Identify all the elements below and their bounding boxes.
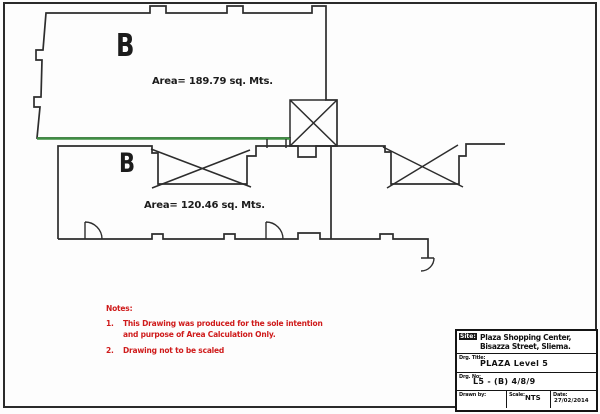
drg-no-value: L5 - (B) 4/8/9 xyxy=(473,377,536,386)
drawn-by-cell: Drawn by: xyxy=(457,391,507,408)
note-text: Drawing not to be scaled xyxy=(123,345,224,357)
lower-unit-area-text: Area= 120.46 sq. Mts. xyxy=(144,200,265,211)
note-item: 2. Drawing not to be scaled xyxy=(106,345,323,357)
drawn-by-label: Drawn by: xyxy=(459,392,486,398)
upper-unit-area-text: Area= 189.79 sq. Mts. xyxy=(152,76,273,87)
lower-unit-bottom-outline xyxy=(58,233,428,258)
note-number: 1. xyxy=(106,318,123,341)
door-swing-bottom-right xyxy=(421,258,434,271)
date-value: 27/02/2014 xyxy=(554,398,589,404)
title-block: Site: Plaza Shopping Center, Bisazza Str… xyxy=(455,329,598,412)
upper-stair-cross xyxy=(290,100,337,146)
scale-cell: Scale: NTS xyxy=(507,391,551,408)
door-swing-middle xyxy=(266,222,283,239)
date-cell: Date: 27/02/2014 xyxy=(551,391,596,408)
upper-unit-label: B xyxy=(116,31,134,62)
notes-heading: Notes: xyxy=(106,303,323,315)
site-label: Site: xyxy=(459,333,477,340)
note-text: This Drawing was produced for the sole i… xyxy=(123,318,323,341)
title-block-site-row: Site: Plaza Shopping Center, Bisazza Str… xyxy=(457,331,596,354)
note-item: 1. This Drawing was produced for the sol… xyxy=(106,318,323,341)
drawing-sheet: B Area= 189.79 sq. Mts. B Area= 120.46 s… xyxy=(0,0,600,414)
title-block-drg-title-row: Drg. Title: PLAZA Level 5 xyxy=(457,354,596,373)
lower-right-stair-cross xyxy=(383,145,463,188)
scale-value: NTS xyxy=(525,394,541,402)
title-block-bottom-row: Drawn by: Scale: NTS Date: 27/02/2014 xyxy=(457,391,596,408)
drg-title-value: PLAZA Level 5 xyxy=(480,359,548,368)
notes-section: Notes: 1. This Drawing was produced for … xyxy=(106,303,323,360)
title-block-drg-no-row: Drg. No: L5 - (B) 4/8/9 xyxy=(457,373,596,391)
lower-unit-label: B xyxy=(119,150,135,177)
site-address: Plaza Shopping Center, Bisazza Street, S… xyxy=(480,333,571,351)
note-number: 2. xyxy=(106,345,123,357)
lower-left-stair-cross xyxy=(151,149,251,188)
door-swing-left xyxy=(85,222,102,239)
scale-label: Scale: xyxy=(509,392,525,398)
